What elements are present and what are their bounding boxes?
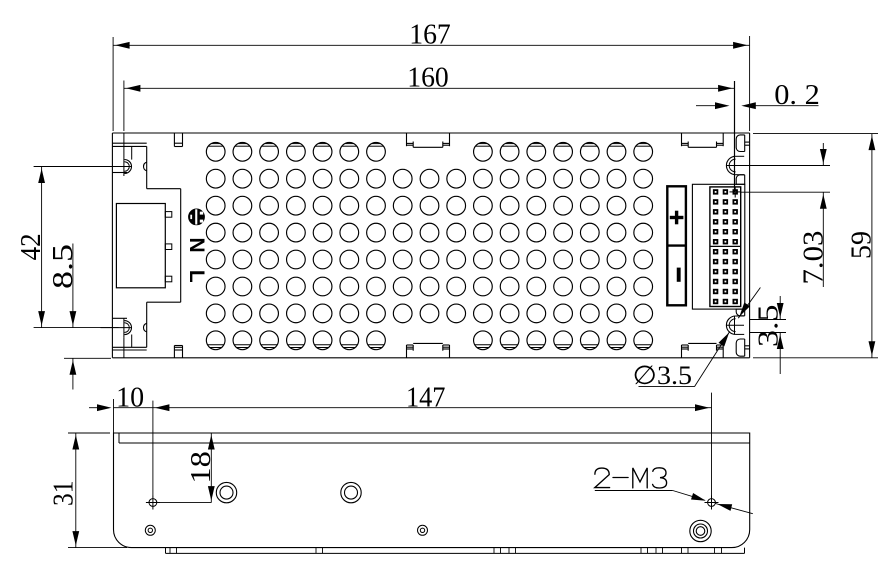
svg-text:0. 2: 0. 2	[774, 80, 820, 111]
svg-text:L: L	[185, 270, 208, 283]
svg-text:3.5: 3.5	[754, 305, 785, 348]
svg-text:160: 160	[407, 63, 449, 94]
svg-text:18: 18	[186, 451, 217, 484]
svg-text:59: 59	[847, 231, 878, 259]
svg-text:42: 42	[16, 233, 47, 260]
svg-text:8.5: 8.5	[48, 244, 79, 289]
svg-text:167: 167	[409, 20, 451, 51]
svg-text:7.03: 7.03	[798, 231, 829, 285]
svg-text:N: N	[185, 238, 208, 253]
svg-text:10: 10	[116, 383, 144, 414]
svg-text:147: 147	[406, 383, 446, 414]
svg-text:∅3.5: ∅3.5	[633, 361, 693, 390]
svg-text:31: 31	[49, 481, 80, 507]
